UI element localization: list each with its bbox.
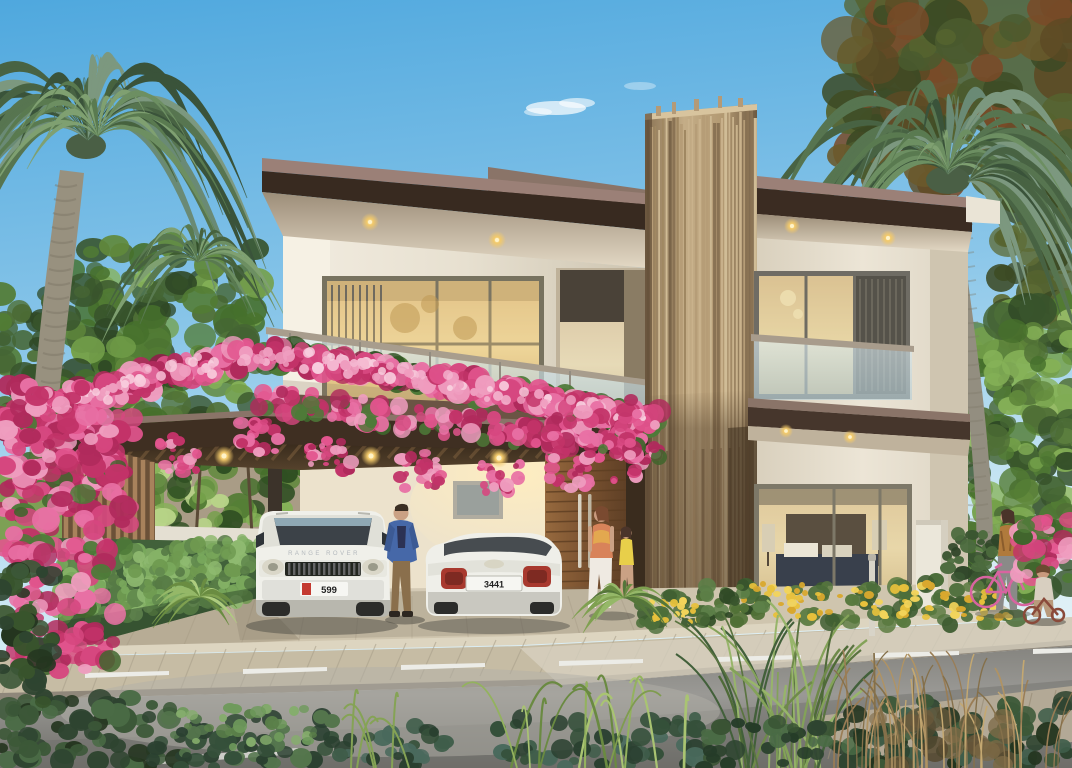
svg-text:599: 599 (321, 585, 337, 596)
svg-text:RANGE ROVER: RANGE ROVER (288, 551, 360, 557)
svg-text:3441: 3441 (484, 580, 504, 590)
